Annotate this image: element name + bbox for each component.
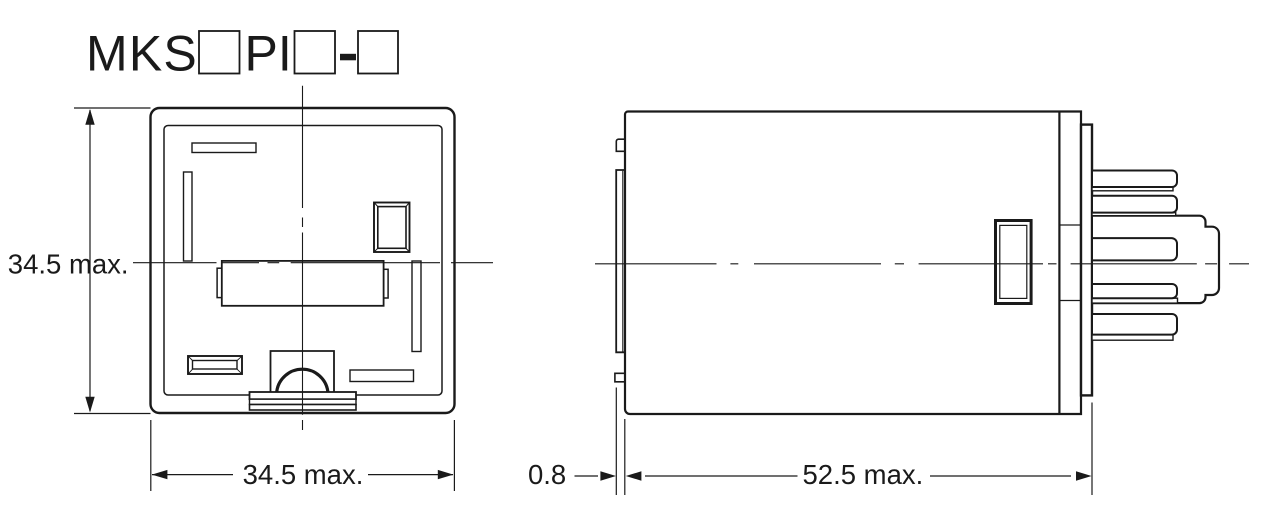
svg-text:PI: PI <box>245 25 292 81</box>
svg-text:52.5 max.: 52.5 max. <box>803 459 924 490</box>
svg-text:MKS: MKS <box>86 25 198 81</box>
svg-text:0.8: 0.8 <box>528 459 566 490</box>
svg-text:34.5 max.: 34.5 max. <box>243 459 364 490</box>
svg-text:34.5 max.: 34.5 max. <box>8 248 129 279</box>
